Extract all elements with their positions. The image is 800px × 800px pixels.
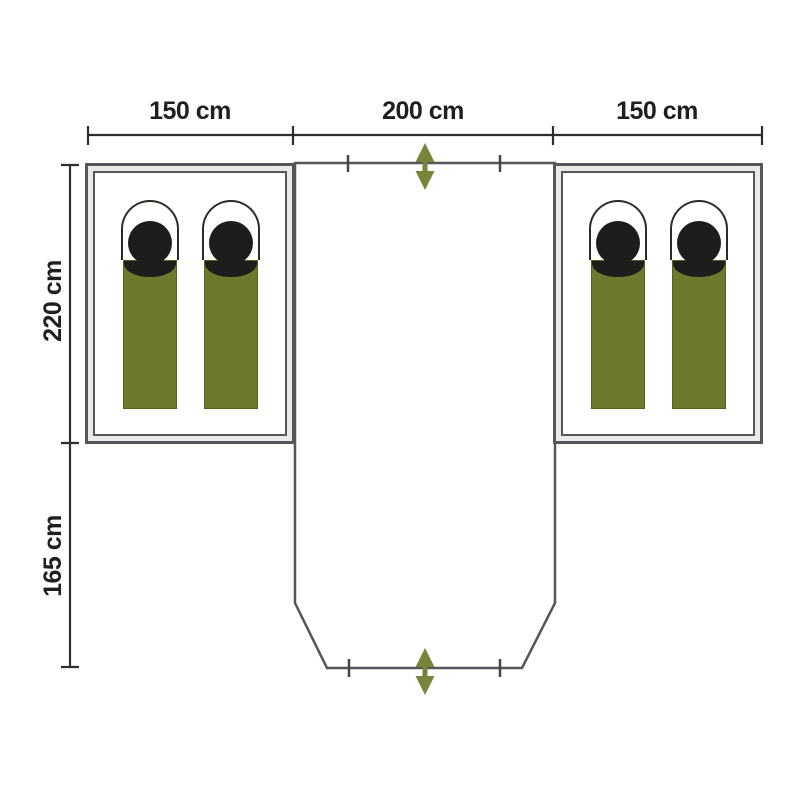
sleeping-bag-body	[672, 260, 726, 409]
dimension-label-porch-width: 200 cm	[363, 97, 483, 125]
sleeping-bag-body	[591, 260, 645, 409]
sleeper-head-icon	[677, 221, 721, 265]
sleeping-bag	[121, 200, 179, 409]
sleeping-bag-hood	[202, 200, 260, 260]
porch-outline	[295, 163, 555, 668]
sleeping-bag-hood	[670, 200, 728, 260]
sleeping-cabin-left-floor	[93, 171, 287, 436]
dimension-label-right-width: 150 cm	[597, 97, 717, 125]
sleeper-head-icon	[596, 221, 640, 265]
dimension-label-canopy-depth: 165 cm	[39, 496, 67, 616]
sleeper-head-icon	[209, 221, 253, 265]
sleeping-cabin-left	[85, 163, 295, 444]
tent-floorplan-diagram: 150 cm 200 cm 150 cm 220 cm 165 cm	[0, 0, 800, 800]
dimension-label-left-width: 150 cm	[130, 97, 250, 125]
sleeping-bag-body	[204, 260, 258, 409]
sleeping-bag	[589, 200, 647, 409]
sleeping-cabin-right	[553, 163, 763, 444]
sleeping-bag	[670, 200, 728, 409]
sleeping-bag	[202, 200, 260, 409]
sleeping-cabin-right-floor	[561, 171, 755, 436]
sleeping-bag-hood	[589, 200, 647, 260]
sleeping-bag-body	[123, 260, 177, 409]
dimension-label-cabin-depth: 220 cm	[39, 241, 67, 361]
sleeping-bag-hood	[121, 200, 179, 260]
sleeper-head-icon	[128, 221, 172, 265]
top-dimension-line	[88, 126, 762, 145]
